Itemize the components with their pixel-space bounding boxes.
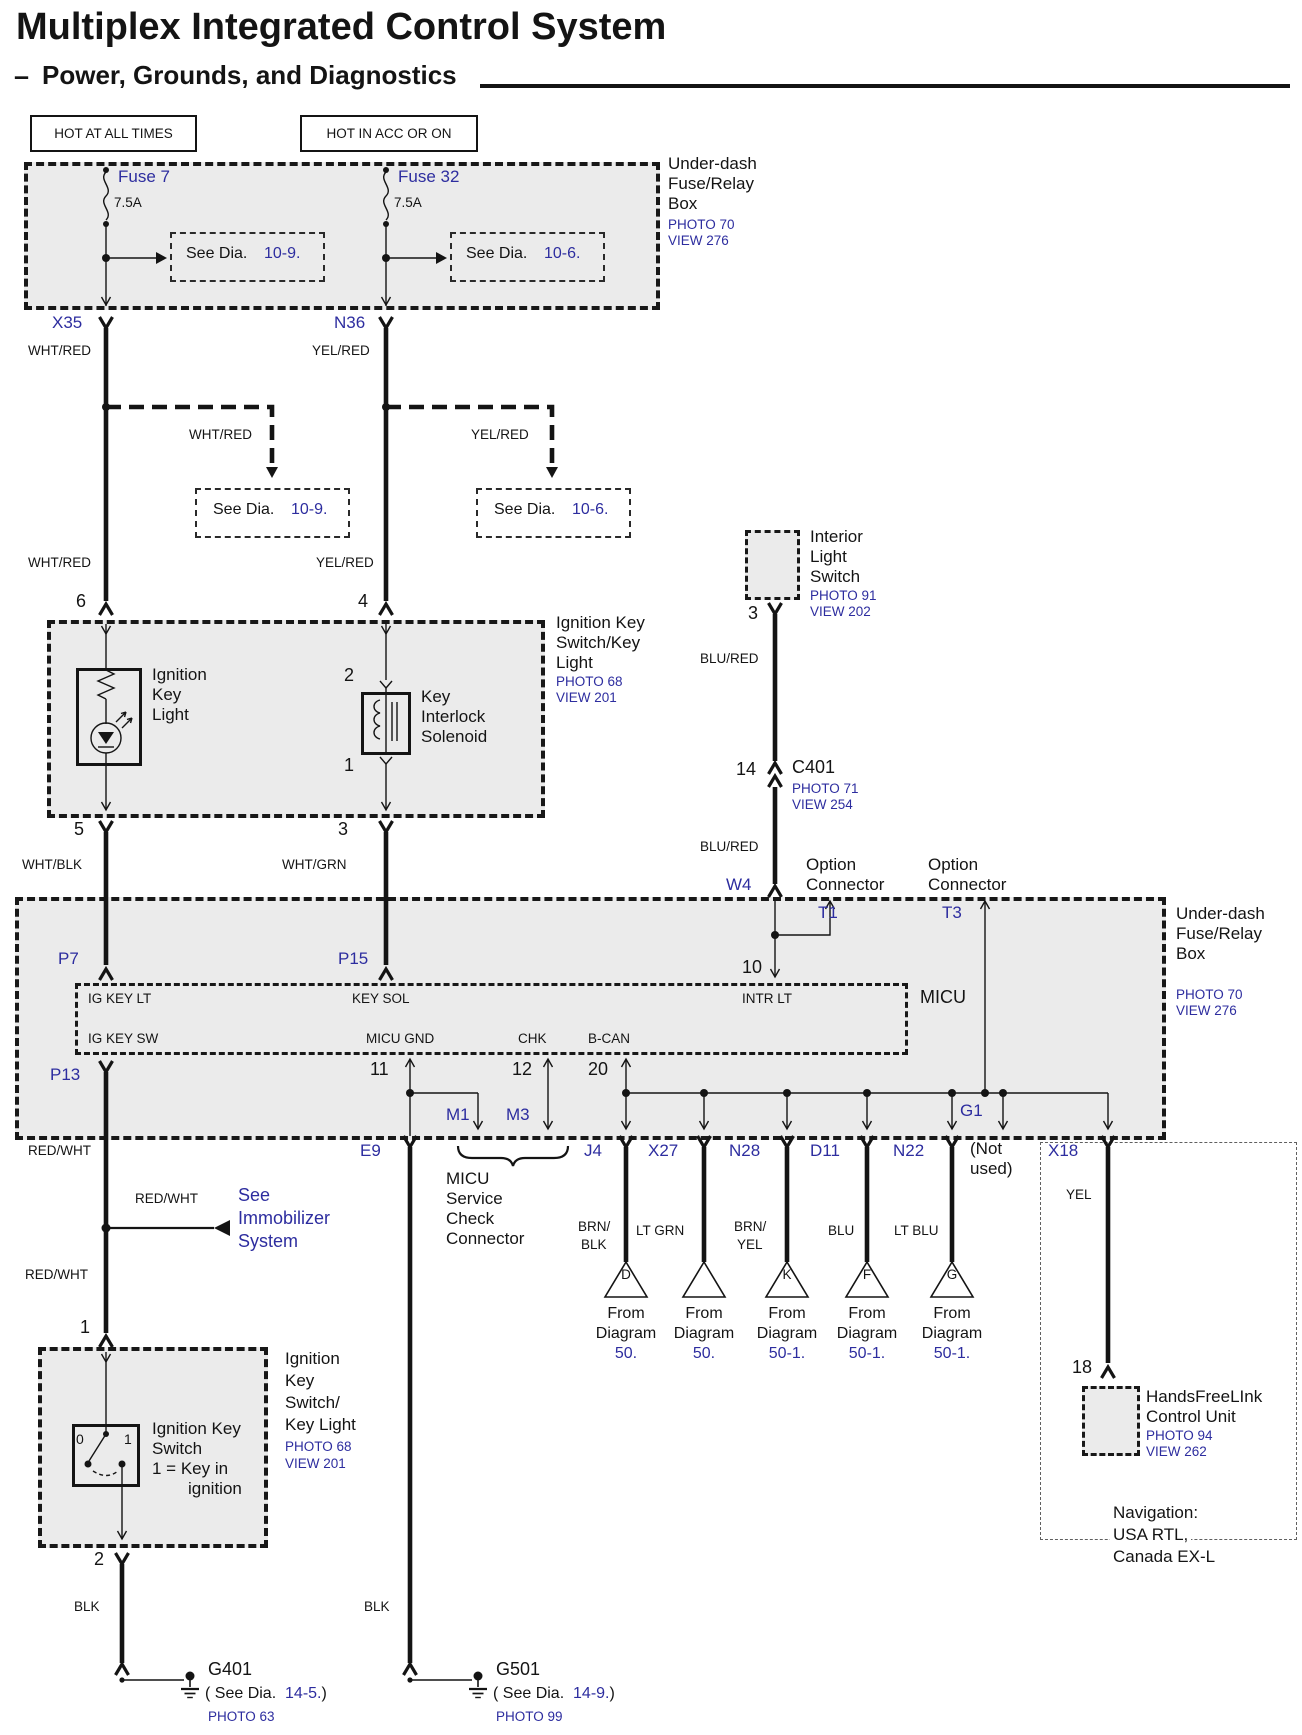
service-label-1: MICU: [446, 1170, 489, 1188]
see-dia-1-pre: See Dia.: [186, 246, 247, 263]
service-label-4: Connector: [446, 1230, 524, 1248]
dianum-2: 50.: [659, 1346, 749, 1363]
diagram-5: Diagram: [907, 1326, 997, 1343]
service-label-3: Check: [446, 1210, 494, 1228]
blu-red-1: BLU/RED: [700, 652, 759, 666]
connector-e9: E9: [360, 1142, 381, 1160]
g401-ground-run: [116, 1553, 200, 1698]
option-conn-1b: Connector: [806, 876, 884, 894]
pin-4: 4: [358, 592, 368, 611]
g401-see-pre: ( See Dia.: [205, 1685, 276, 1702]
fusebox-top-photo: PHOTO 70: [668, 218, 735, 232]
pin-3-interior: 3: [748, 604, 758, 623]
fusebox-top-name-3: Box: [668, 195, 697, 213]
micu-pin-chk: CHK: [518, 1032, 547, 1046]
g401-see-post: ): [322, 1685, 327, 1702]
p15-wire-run: [380, 821, 393, 980]
pin-10: 10: [742, 958, 762, 977]
see-dia-2-pre: See Dia.: [466, 246, 527, 263]
pin-1-lower: 1: [80, 1318, 90, 1337]
j4-run: [620, 1136, 633, 1262]
switch-label-3: 1 = Key in: [152, 1460, 228, 1478]
n28-color-2: YEL: [737, 1238, 763, 1252]
bigbox-name-1: Under-dash: [1176, 905, 1265, 923]
micu-pin-b-can: B-CAN: [588, 1032, 630, 1046]
see-dia-4-pre: See Dia.: [494, 502, 555, 519]
ign-lower-photo: PHOTO 68: [285, 1440, 352, 1454]
diagram-4: Diagram: [822, 1326, 912, 1343]
page-subtitle: Power, Grounds, and Diagnostics: [42, 62, 457, 89]
see-dia-1-num: 10-9.: [264, 246, 300, 263]
connector-t3: T3: [942, 904, 962, 922]
c401-photo: PHOTO 71: [792, 782, 859, 796]
hfl-photo: PHOTO 94: [1146, 1429, 1213, 1443]
p7-wire-run: [100, 821, 113, 980]
x18-color: YEL: [1066, 1188, 1092, 1202]
g401-label: G401: [208, 1660, 252, 1679]
not-used-2: used): [970, 1160, 1013, 1178]
j4-color-2: BLK: [581, 1238, 607, 1252]
interior-label-2: Light: [810, 548, 847, 566]
pin-20: 20: [588, 1060, 608, 1079]
interior-view: VIEW 202: [810, 605, 871, 619]
d11-run: [861, 1136, 874, 1262]
solenoid-label-2: Interlock: [421, 708, 485, 726]
from-5: From: [907, 1306, 997, 1323]
micu-pin-key-sol: KEY SOL: [352, 992, 410, 1006]
from-1: From: [581, 1306, 671, 1323]
connector-w4: W4: [726, 876, 752, 894]
fuse32-circuit: [382, 167, 448, 306]
connector-n28: N28: [729, 1142, 760, 1160]
page-title: Multiplex Integrated Control System: [16, 8, 666, 48]
n28-color-1: BRN/: [734, 1220, 766, 1234]
t3-wire-run: [981, 901, 990, 1093]
immobilizer-label: Immobilizer: [238, 1209, 330, 1228]
switch-label-1: Ignition Key: [152, 1420, 241, 1438]
micu-pin-intr-lt: INTR LT: [742, 992, 792, 1006]
g401-color: BLK: [74, 1600, 100, 1614]
fuse32-label: Fuse 32: [398, 168, 459, 186]
key-light-label-3: Light: [152, 706, 189, 724]
see-dia-4-num: 10-6.: [572, 502, 608, 519]
solenoid-label-1: Key: [421, 688, 450, 706]
dianum-3: 50-1.: [742, 1346, 832, 1363]
ign-upper-view: VIEW 201: [556, 691, 617, 705]
n22-color: LT BLU: [894, 1224, 939, 1238]
from-4: From: [822, 1306, 912, 1323]
key-interlock-solenoid-symbol: [374, 624, 397, 810]
pin-6: 6: [76, 592, 86, 611]
solenoid-label-3: Solenoid: [421, 728, 487, 746]
pin-12: 12: [512, 1060, 532, 1079]
dianum-4: 50-1.: [822, 1346, 912, 1363]
ignition-key-light-symbol: [91, 624, 132, 810]
immobilizer-see: See: [238, 1186, 270, 1205]
option-conn-2a: Option: [928, 856, 978, 874]
hfl-label-1: HandsFreeLInk: [1146, 1388, 1262, 1406]
ign-lower-name-2: Key: [285, 1372, 314, 1390]
triangle-letter-g: G: [945, 1268, 959, 1282]
switch-label-2: Switch: [152, 1440, 202, 1458]
connector-x18: X18: [1048, 1142, 1078, 1160]
switch-pos-1: 1: [124, 1432, 132, 1447]
from-3: From: [742, 1306, 832, 1323]
fuse7-label: Fuse 7: [118, 168, 170, 186]
see-dia-3-num: 10-9.: [291, 502, 327, 519]
interior-photo: PHOTO 91: [810, 589, 877, 603]
diagram-3: Diagram: [742, 1326, 832, 1343]
from-2: From: [659, 1306, 749, 1323]
d11-color: BLU: [828, 1224, 854, 1238]
connector-t1: T1: [818, 904, 838, 922]
option-conn-2b: Connector: [928, 876, 1006, 894]
bigbox-name-2: Fuse/Relay: [1176, 925, 1262, 943]
n36-wire-color-2: YEL/RED: [316, 556, 374, 570]
nav-label-1: Navigation:: [1110, 1504, 1201, 1522]
connector-n36: N36: [334, 314, 365, 332]
connector-m3: M3: [506, 1106, 530, 1124]
pin-2-lower: 2: [94, 1550, 104, 1569]
g501-see: ( See Dia. 14-9.): [493, 1686, 615, 1703]
ignition-switch-symbol: [85, 1352, 127, 1539]
ign-upper-photo: PHOTO 68: [556, 675, 623, 689]
see-dia-2-num: 10-6.: [544, 246, 580, 263]
bigbox-photo: PHOTO 70: [1176, 988, 1243, 1002]
p15-wire-color: WHT/GRN: [282, 858, 347, 872]
interior-label-3: Switch: [810, 568, 860, 586]
n28-run: [781, 1136, 794, 1262]
n22-run: [946, 1136, 959, 1262]
pin-18: 18: [1072, 1358, 1092, 1377]
ign-lower-name-3: Switch/: [285, 1394, 340, 1412]
g501-see-num: 14-9.: [573, 1685, 609, 1702]
x27-color: LT GRN: [636, 1224, 684, 1238]
g401-see-num: 14-5.: [285, 1685, 321, 1702]
ign-upper-name-3: Light: [556, 654, 593, 672]
bigbox-view: VIEW 276: [1176, 1004, 1237, 1018]
key-light-label-1: Ignition: [152, 666, 207, 684]
p13-color-3: RED/WHT: [25, 1268, 88, 1282]
connector-p7: P7: [58, 950, 79, 968]
connector-j4: J4: [584, 1142, 602, 1160]
x35-wire-color-2: WHT/RED: [28, 556, 91, 570]
n36-wire-color: YEL/RED: [312, 344, 370, 358]
p13-color-1: RED/WHT: [28, 1144, 91, 1158]
triangle-letter-d: D: [619, 1268, 633, 1282]
n36-wire-run: [380, 317, 559, 634]
connector-x35: X35: [52, 314, 82, 332]
pin-2: 2: [344, 666, 354, 685]
x18-run: [1102, 1136, 1115, 1378]
connector-m1: M1: [446, 1106, 470, 1124]
connector-n22: N22: [893, 1142, 924, 1160]
pin-3: 3: [338, 820, 348, 839]
diagram-2: Diagram: [659, 1326, 749, 1343]
wiring-diagram-page: HOT AT ALL TIMES HOT IN ACC OR ON: [0, 0, 1302, 1735]
see-dia-3-pre: See Dia.: [213, 502, 274, 519]
hfl-label-2: Control Unit: [1146, 1408, 1236, 1426]
connector-p13: P13: [50, 1066, 80, 1084]
option-conn-1a: Option: [806, 856, 856, 874]
g501-label: G501: [496, 1660, 540, 1679]
fusebox-top-view: VIEW 276: [668, 234, 729, 248]
dianum-5: 50-1.: [907, 1346, 997, 1363]
interior-label-1: Interior: [810, 528, 863, 546]
g501-color: BLK: [364, 1600, 390, 1614]
micu-pin-ig-key-lt: IG KEY LT: [88, 992, 151, 1006]
dianum-1: 50.: [581, 1346, 671, 1363]
connector-d11: D11: [810, 1142, 840, 1160]
branch-b-color: YEL/RED: [468, 428, 532, 442]
nav-label-2: USA RTL,: [1110, 1526, 1191, 1544]
connector-x27: X27: [648, 1142, 678, 1160]
nav-label-3: Canada EX-L: [1110, 1548, 1218, 1566]
ign-lower-name-1: Ignition: [285, 1350, 340, 1368]
pin-5: 5: [74, 820, 84, 839]
fuse7-amp: 7.5A: [114, 196, 142, 210]
p13-color-2: RED/WHT: [135, 1192, 198, 1206]
connector-g1: G1: [960, 1102, 983, 1120]
fuse7-circuit: [102, 167, 168, 306]
p7-wire-color: WHT/BLK: [22, 858, 82, 872]
bigbox-name-3: Box: [1176, 945, 1205, 963]
ign-lower-view: VIEW 201: [285, 1457, 346, 1471]
ign-upper-name-1: Ignition Key: [556, 614, 645, 632]
hfl-view: VIEW 262: [1146, 1445, 1207, 1459]
switch-label-4: ignition: [188, 1480, 242, 1498]
c401-label: C401: [792, 758, 835, 777]
fusebox-top-name-1: Under-dash: [668, 155, 757, 173]
g401-see: ( See Dia. 14-5.): [205, 1686, 327, 1703]
pin-1: 1: [344, 756, 354, 775]
subtitle-rule: [480, 84, 1290, 88]
x35-wire-color: WHT/RED: [28, 344, 91, 358]
micu-pin-micu-gnd: MICU GND: [366, 1032, 434, 1046]
switch-pos-0: 0: [76, 1432, 84, 1447]
pin-11: 11: [370, 1060, 389, 1079]
x35-wire-run: [100, 317, 279, 634]
g401-photo: PHOTO 63: [208, 1710, 275, 1724]
diagram-1: Diagram: [581, 1326, 671, 1343]
fusebox-top-name-2: Fuse/Relay: [668, 175, 754, 193]
immobilizer-system: System: [238, 1232, 298, 1251]
branch-a-color: WHT/RED: [186, 428, 255, 442]
ign-upper-name-2: Switch/Key: [556, 634, 640, 652]
subtitle-dash: –: [14, 62, 29, 90]
micu-pin-ig-key-sw: IG KEY SW: [88, 1032, 158, 1046]
not-used-1: (Not: [970, 1140, 1002, 1158]
key-light-label-2: Key: [152, 686, 181, 704]
ign-lower-name-4: Key Light: [285, 1416, 356, 1434]
pin-14: 14: [736, 760, 756, 779]
j4-color-1: BRN/: [578, 1220, 610, 1234]
c401-view: VIEW 254: [792, 798, 853, 812]
g501-see-pre: ( See Dia.: [493, 1685, 564, 1702]
x27-run: [698, 1136, 711, 1262]
triangle-letter-k: K: [780, 1268, 794, 1282]
service-connector-brace: [458, 1146, 568, 1166]
fuse32-amp: 7.5A: [394, 196, 422, 210]
blu-red-2: BLU/RED: [700, 840, 759, 854]
g501-see-post: ): [610, 1685, 615, 1702]
micu-label: MICU: [920, 988, 966, 1007]
triangle-letter-f: F: [860, 1268, 874, 1282]
connector-p15: P15: [338, 950, 368, 968]
service-label-2: Service: [446, 1190, 503, 1208]
g501-photo: PHOTO 99: [496, 1710, 563, 1724]
